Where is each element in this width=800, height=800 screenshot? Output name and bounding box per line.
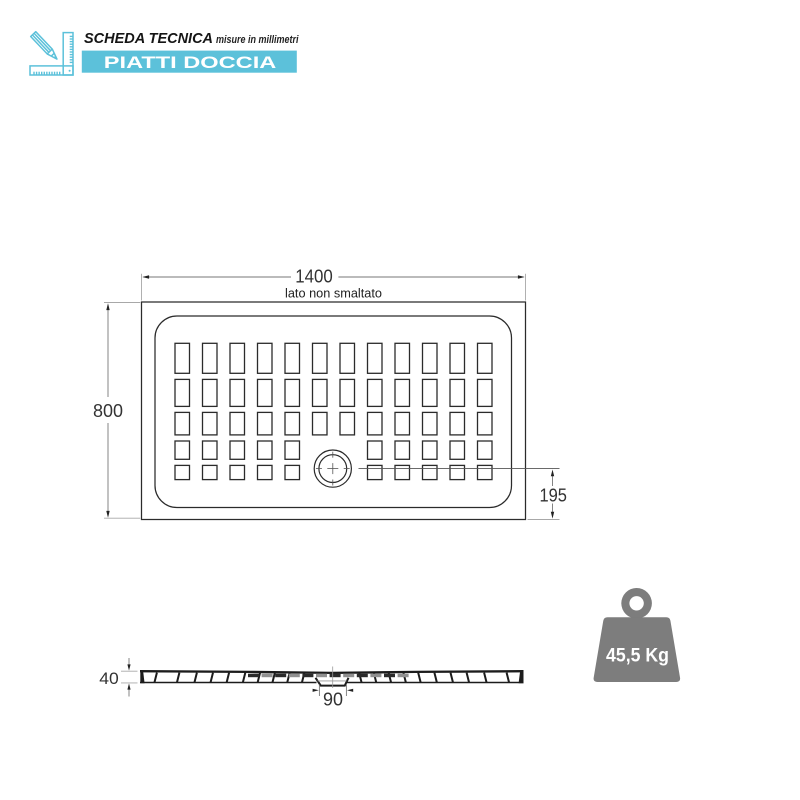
svg-text:195: 195	[539, 484, 567, 505]
svg-text:90: 90	[323, 689, 343, 710]
svg-text:40: 40	[99, 669, 119, 688]
svg-text:PIATTI DOCCIA: PIATTI DOCCIA	[104, 53, 276, 72]
svg-text:45,5 Kg: 45,5 Kg	[606, 645, 669, 667]
svg-text:1400: 1400	[295, 265, 333, 286]
svg-text:misure in millimetri: misure in millimetri	[216, 34, 299, 46]
svg-text:SCHEDA TECNICA: SCHEDA TECNICA	[84, 30, 213, 47]
svg-text:lato non smaltato: lato non smaltato	[285, 286, 382, 301]
svg-text:800: 800	[93, 400, 123, 421]
